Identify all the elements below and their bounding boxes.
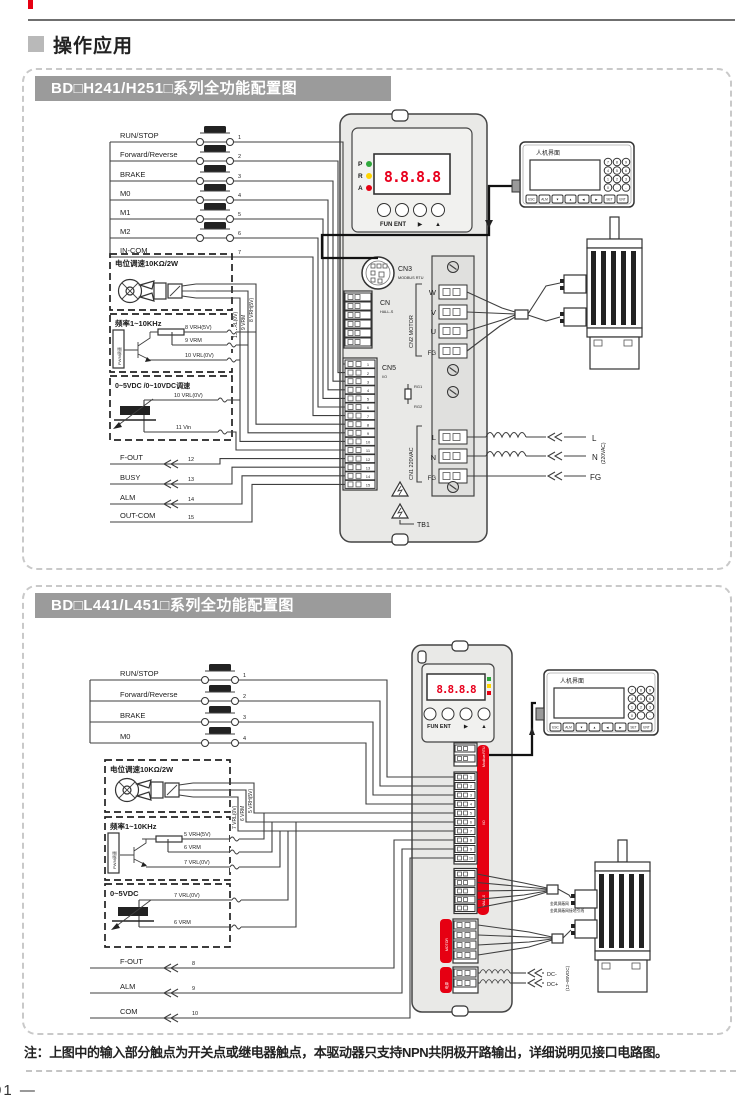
- switch-label: M0: [120, 189, 130, 198]
- output-label: BUSY: [120, 473, 140, 482]
- manual-page: { "header": { "title": "操作应用" }, "footer…: [0, 0, 750, 1111]
- pwm-side-label: PWM调速: [111, 851, 117, 869]
- up-button[interactable]: [478, 708, 490, 720]
- dc-plus-label: DC+: [547, 982, 558, 988]
- vrl-wire-label: 7 VRL(0V): [232, 805, 238, 829]
- voltage-label: (220VAC): [601, 442, 607, 464]
- cn3-din-connector: [362, 257, 394, 289]
- svg-text:SET: SET: [606, 198, 612, 202]
- switch-label: BRAKE: [120, 711, 145, 720]
- right-arrow-icon: ▶: [418, 222, 423, 228]
- fun-button[interactable]: [424, 708, 436, 720]
- motor: [467, 217, 642, 369]
- pwm-box-title: 频率1~10KHz: [110, 821, 157, 831]
- pwm-wire-label: 9 VRM: [185, 338, 202, 344]
- rg1-label: RG1: [414, 384, 423, 389]
- svg-text:2: 2: [470, 785, 472, 789]
- svg-text:10: 10: [469, 857, 473, 861]
- terminal-w: [439, 285, 467, 299]
- svg-text:9: 9: [649, 689, 651, 693]
- pwm-wire-label: 5 VRH(5V): [184, 832, 211, 838]
- output-signals: F-OUT BUSY ALM OUT-COM 12 13 14 15: [110, 453, 345, 522]
- svg-text:ESC: ESC: [528, 198, 535, 202]
- u-label: U: [431, 327, 436, 336]
- ent-button[interactable]: [396, 204, 409, 217]
- led-label-r: R: [358, 173, 363, 180]
- svg-text:▼: ▼: [556, 198, 559, 202]
- svg-text:SET: SET: [630, 726, 636, 730]
- hmi-panel: 人机界面 7894561230.- ESCALM▼▲◀▶SETENT: [536, 670, 658, 735]
- svg-text:5: 5: [470, 812, 472, 816]
- pin-number: 2: [238, 154, 241, 160]
- w-label: W: [429, 288, 437, 297]
- svg-text:5: 5: [640, 697, 642, 701]
- pot-box-title: 电位调速10KΩ/2W: [110, 764, 174, 774]
- driver-unit: P R A 8.8.8.8 FUN ENT ▶ ▲ CN3: [340, 110, 487, 545]
- switch-label: M1: [120, 208, 130, 217]
- fg-terminal-label: FG: [428, 476, 437, 482]
- svg-text:▲: ▲: [569, 198, 572, 202]
- screw: [448, 365, 459, 376]
- pin-number: 14: [188, 497, 194, 503]
- pin-number: 3: [238, 174, 241, 180]
- shield-note-2: 金属屏蔽网接地引线: [550, 908, 584, 913]
- svg-text:2: 2: [616, 178, 618, 182]
- svg-text:6: 6: [625, 169, 627, 173]
- pwm-wire-label: 8 VRH(5V): [185, 325, 212, 331]
- pin-number: 2: [243, 694, 246, 700]
- button-row-label: FUN ENT: [380, 222, 406, 228]
- output-label: F-OUT: [120, 957, 143, 966]
- cn5-io-strip: 123456789101112131415: [343, 358, 377, 490]
- rg2-label: RG2: [414, 404, 423, 409]
- vrh-wire-label: 8 VRH(5V): [249, 297, 255, 322]
- driver-unit: 8.8.8.8 FUN ENT ▶ ▲ Modbus RTU I/O HALL-…: [412, 641, 512, 1016]
- button-row-label: FUN ENT: [427, 724, 451, 730]
- hall-connector: [454, 869, 477, 914]
- l-terminal-label: L: [432, 433, 436, 442]
- pwm-wire-label: 7 VRL(0V): [184, 860, 210, 866]
- section-bullet-icon: [28, 36, 44, 52]
- svg-text:3: 3: [649, 706, 651, 710]
- svg-text:1: 1: [470, 776, 472, 780]
- cn2-motor-label: CN2 MOTOR: [409, 315, 415, 348]
- up-arrow-icon: ▲: [435, 222, 441, 228]
- pin-number: 7: [238, 250, 241, 256]
- terminal-n: [439, 449, 467, 463]
- output-label: ALM: [120, 493, 135, 502]
- cn-hall-label: CN: [380, 300, 390, 307]
- page-accent-mark: [28, 0, 33, 9]
- n-terminal-label: N: [431, 453, 436, 462]
- brake-switch[interactable]: [197, 165, 234, 185]
- v-label: V: [431, 308, 436, 317]
- switch-label: RUN/STOP: [120, 669, 159, 678]
- svg-text:4: 4: [631, 697, 633, 701]
- screw: [448, 482, 459, 493]
- pin-number: 1: [243, 673, 246, 679]
- cn5-sub: I/O: [382, 375, 387, 379]
- switch-label: M0: [120, 732, 130, 741]
- band-hall-label: HALL-S: [482, 894, 486, 907]
- terminal-fg-power: [439, 469, 467, 483]
- line-l-label: L: [592, 434, 597, 443]
- svg-text:9: 9: [625, 161, 627, 165]
- pin-number: 13: [188, 477, 194, 483]
- dc-range-label: (12~80VDC): [565, 965, 570, 991]
- pin-number: 1: [238, 135, 241, 141]
- pin-number: 4: [243, 736, 246, 742]
- top-rule: [28, 19, 735, 21]
- alarm-led-red: [366, 185, 372, 191]
- band-modbus-label: Modbus RTU: [482, 746, 486, 767]
- up-arrow-icon: ▲: [481, 724, 486, 730]
- svg-text:1: 1: [607, 178, 609, 182]
- svg-text:8: 8: [640, 689, 642, 693]
- panel-l441-l451: 8.8.8.8 FUN ENT ▶ ▲ Modbus RTU I/O HALL-…: [22, 585, 732, 1035]
- band-power-label: 电源: [444, 982, 449, 990]
- vdc-box-title: 0~5VDC /0~10VDC调速: [115, 381, 190, 390]
- svg-text:ALM: ALM: [565, 726, 572, 730]
- pin-number: 15: [188, 515, 194, 521]
- output-label: F-OUT: [120, 453, 143, 462]
- pwm-wire-label: 6 VRM: [184, 845, 201, 851]
- vdc-box-title: 0~5VDC: [110, 889, 139, 898]
- screw: [448, 262, 459, 273]
- motor-connector-block: [453, 919, 478, 963]
- svg-text:▲: ▲: [593, 726, 596, 730]
- vdc-wire-label: 7 VRL(0V): [174, 893, 200, 899]
- forward-reverse-switch[interactable]: [197, 145, 234, 165]
- pwm-side-label: PWM调速: [116, 347, 122, 365]
- svg-text:8: 8: [616, 161, 618, 165]
- m2-switch[interactable]: [197, 222, 234, 242]
- output-label: COM: [120, 1007, 138, 1016]
- modbus-connector: [454, 743, 477, 766]
- svg-text:7: 7: [470, 830, 472, 834]
- diagram-l441: 8.8.8.8 FUN ENT ▶ ▲ Modbus RTU I/O HALL-…: [24, 587, 730, 1033]
- io-strip: 12345678910: [454, 772, 477, 864]
- terminal-u: [439, 324, 467, 338]
- svg-text:6: 6: [649, 697, 651, 701]
- run-led-yellow: [366, 173, 372, 179]
- footer-note: 注：上图中的输入部分触点为开关点或继电器触点，本驱动器只支持NPN共阴极开路输出…: [24, 1042, 744, 1061]
- svg-text:ALM: ALM: [541, 198, 548, 202]
- hmi-title: 人机界面: [536, 149, 560, 157]
- svg-text:9: 9: [470, 848, 472, 852]
- vrh-wire-label: 5 VRH(5V): [248, 788, 254, 813]
- svg-text:0: 0: [607, 186, 609, 190]
- pin-number: 6: [238, 231, 241, 237]
- page-number: 01 —: [0, 1082, 37, 1099]
- output-label: OUT-COM: [120, 511, 155, 520]
- fg-motor-label: FG: [428, 351, 437, 357]
- band-io-label: I/O: [482, 820, 486, 825]
- led-yellow: [487, 684, 491, 688]
- svg-text:4: 4: [470, 803, 472, 807]
- led-label-p: P: [358, 161, 363, 168]
- line-fg-label: FG: [590, 473, 601, 482]
- svg-text:12: 12: [366, 457, 371, 462]
- led-label-a: A: [358, 185, 363, 192]
- power-led-green: [366, 161, 372, 167]
- pwm-box-title: 频率1~10KHz: [115, 318, 162, 328]
- m0-switch[interactable]: [197, 184, 234, 204]
- vdc-wire-label: 10 VRL(0V): [174, 393, 203, 399]
- panel1-title-bar: BD□H241/H251□系列全功能配置图: [35, 76, 391, 101]
- shield-note-1: 金属屏蔽网: [550, 901, 569, 906]
- display-digits: 8.8.8.8: [384, 168, 441, 186]
- svg-text:4: 4: [607, 169, 609, 173]
- svg-text:1: 1: [631, 706, 633, 710]
- dc-minus-label: DC-: [547, 972, 557, 978]
- vin-wire-label: 11 Vin: [176, 425, 191, 431]
- switch-label: BRAKE: [120, 170, 145, 179]
- pin-number: 12: [188, 457, 194, 463]
- svg-text:10: 10: [366, 440, 371, 445]
- switch-label: Forward/Reverse: [120, 150, 178, 159]
- led-green: [487, 677, 491, 681]
- ac-power: L N FG (220VAC): [467, 433, 607, 483]
- svg-text:0: 0: [631, 714, 633, 718]
- pin-number: 5: [238, 212, 241, 218]
- page-title: 操作应用: [53, 31, 133, 58]
- switch-label: Forward/Reverse: [120, 690, 178, 699]
- svg-text:14: 14: [366, 474, 371, 479]
- switch-label: RUN/STOP: [120, 131, 159, 140]
- pwm-wire-label: 10 VRL(0V): [185, 353, 214, 359]
- svg-text:7: 7: [607, 161, 609, 165]
- run-stop-switch[interactable]: [202, 664, 239, 684]
- pin-number: 10: [192, 1011, 198, 1017]
- section-header: 操作应用: [28, 32, 133, 56]
- band-motor-label: MOTOR: [445, 938, 449, 951]
- vrm-wire-label: 6 VRM: [240, 806, 246, 821]
- vdc-box: 0~5VDC 7 VRL(0V) 6 VRM: [105, 822, 296, 947]
- svg-text:▼: ▼: [580, 726, 583, 730]
- run-stop-switch[interactable]: [197, 126, 234, 146]
- pin-number: 9: [192, 986, 195, 992]
- svg-text:.: .: [641, 714, 642, 718]
- terminal-fg-motor: [439, 344, 467, 358]
- right-button[interactable]: [460, 708, 472, 720]
- pin-number: 8: [192, 961, 195, 967]
- svg-text:6: 6: [470, 821, 472, 825]
- ent-button[interactable]: [442, 708, 454, 720]
- up-button[interactable]: [432, 204, 445, 217]
- vdc-box: 0~5VDC /0~10VDC调速 10 VRL(0V) 11 Vin: [110, 376, 345, 450]
- pot-box-title: 电位调速10KΩ/2W: [115, 258, 179, 268]
- footer-divider: [26, 1070, 736, 1072]
- vrm-wire-label: 9 VRM: [241, 315, 247, 330]
- tb1-label: TB1: [417, 522, 430, 529]
- vdc-wire-label: 6 VRM: [174, 920, 191, 926]
- svg-text:5: 5: [616, 169, 618, 173]
- svg-text:7: 7: [631, 689, 633, 693]
- cn3-label: CN3: [398, 266, 412, 273]
- output-label: ALM: [120, 982, 135, 991]
- pin-number: 4: [238, 193, 241, 199]
- svg-text:.: .: [617, 186, 618, 190]
- terminal-v: [439, 305, 467, 319]
- display-digits: 8.8.8.8: [436, 683, 476, 696]
- svg-text:3: 3: [625, 178, 627, 182]
- label-band: [477, 745, 489, 915]
- cn-hall-sub: HALL-S: [380, 310, 394, 314]
- svg-text:ENT: ENT: [643, 726, 649, 730]
- svg-text:ENT: ENT: [619, 198, 625, 202]
- hmi-panel: 人机界面 7894561230.- ESCALM▼▲◀▶SETENT: [512, 142, 634, 207]
- switch-label: M2: [120, 227, 130, 236]
- cn3-sub-label: MODBUS RTU: [398, 276, 424, 280]
- svg-text:ESC: ESC: [552, 726, 559, 730]
- pwm-box: 频率1~10KHz PWM调速 5 VRH(5V) 6 VRM 7 VRL(0V…: [105, 813, 280, 880]
- m0-switch[interactable]: [202, 727, 239, 747]
- panel-h241-h251: P R A 8.8.8.8 FUN ENT ▶ ▲ CN3: [22, 68, 732, 570]
- svg-text:8: 8: [470, 839, 472, 843]
- screw: [448, 387, 459, 398]
- power-connector-block: [453, 967, 478, 993]
- svg-text:15: 15: [366, 483, 371, 488]
- led-red: [487, 691, 491, 695]
- terminal-l: [439, 430, 467, 444]
- cn5-label: CN5: [382, 365, 396, 372]
- svg-text:3: 3: [470, 794, 472, 798]
- brake-switch[interactable]: [202, 706, 239, 726]
- cn-hall-strip: [344, 291, 372, 348]
- right-button[interactable]: [414, 204, 427, 217]
- cn1-label: CN1 220VAC: [409, 447, 415, 480]
- m1-switch[interactable]: [197, 203, 234, 223]
- diagram-h241: P R A 8.8.8.8 FUN ENT ▶ ▲ CN3: [24, 70, 730, 568]
- svg-text:13: 13: [366, 465, 371, 470]
- panel2-title-bar: BD□L441/L451□系列全功能配置图: [35, 593, 391, 618]
- fun-button[interactable]: [378, 204, 391, 217]
- line-n-label: N: [592, 453, 598, 462]
- pin-number: 3: [243, 715, 246, 721]
- svg-text:2: 2: [640, 706, 642, 710]
- forward-reverse-switch[interactable]: [202, 685, 239, 705]
- hmi-title: 人机界面: [560, 677, 584, 685]
